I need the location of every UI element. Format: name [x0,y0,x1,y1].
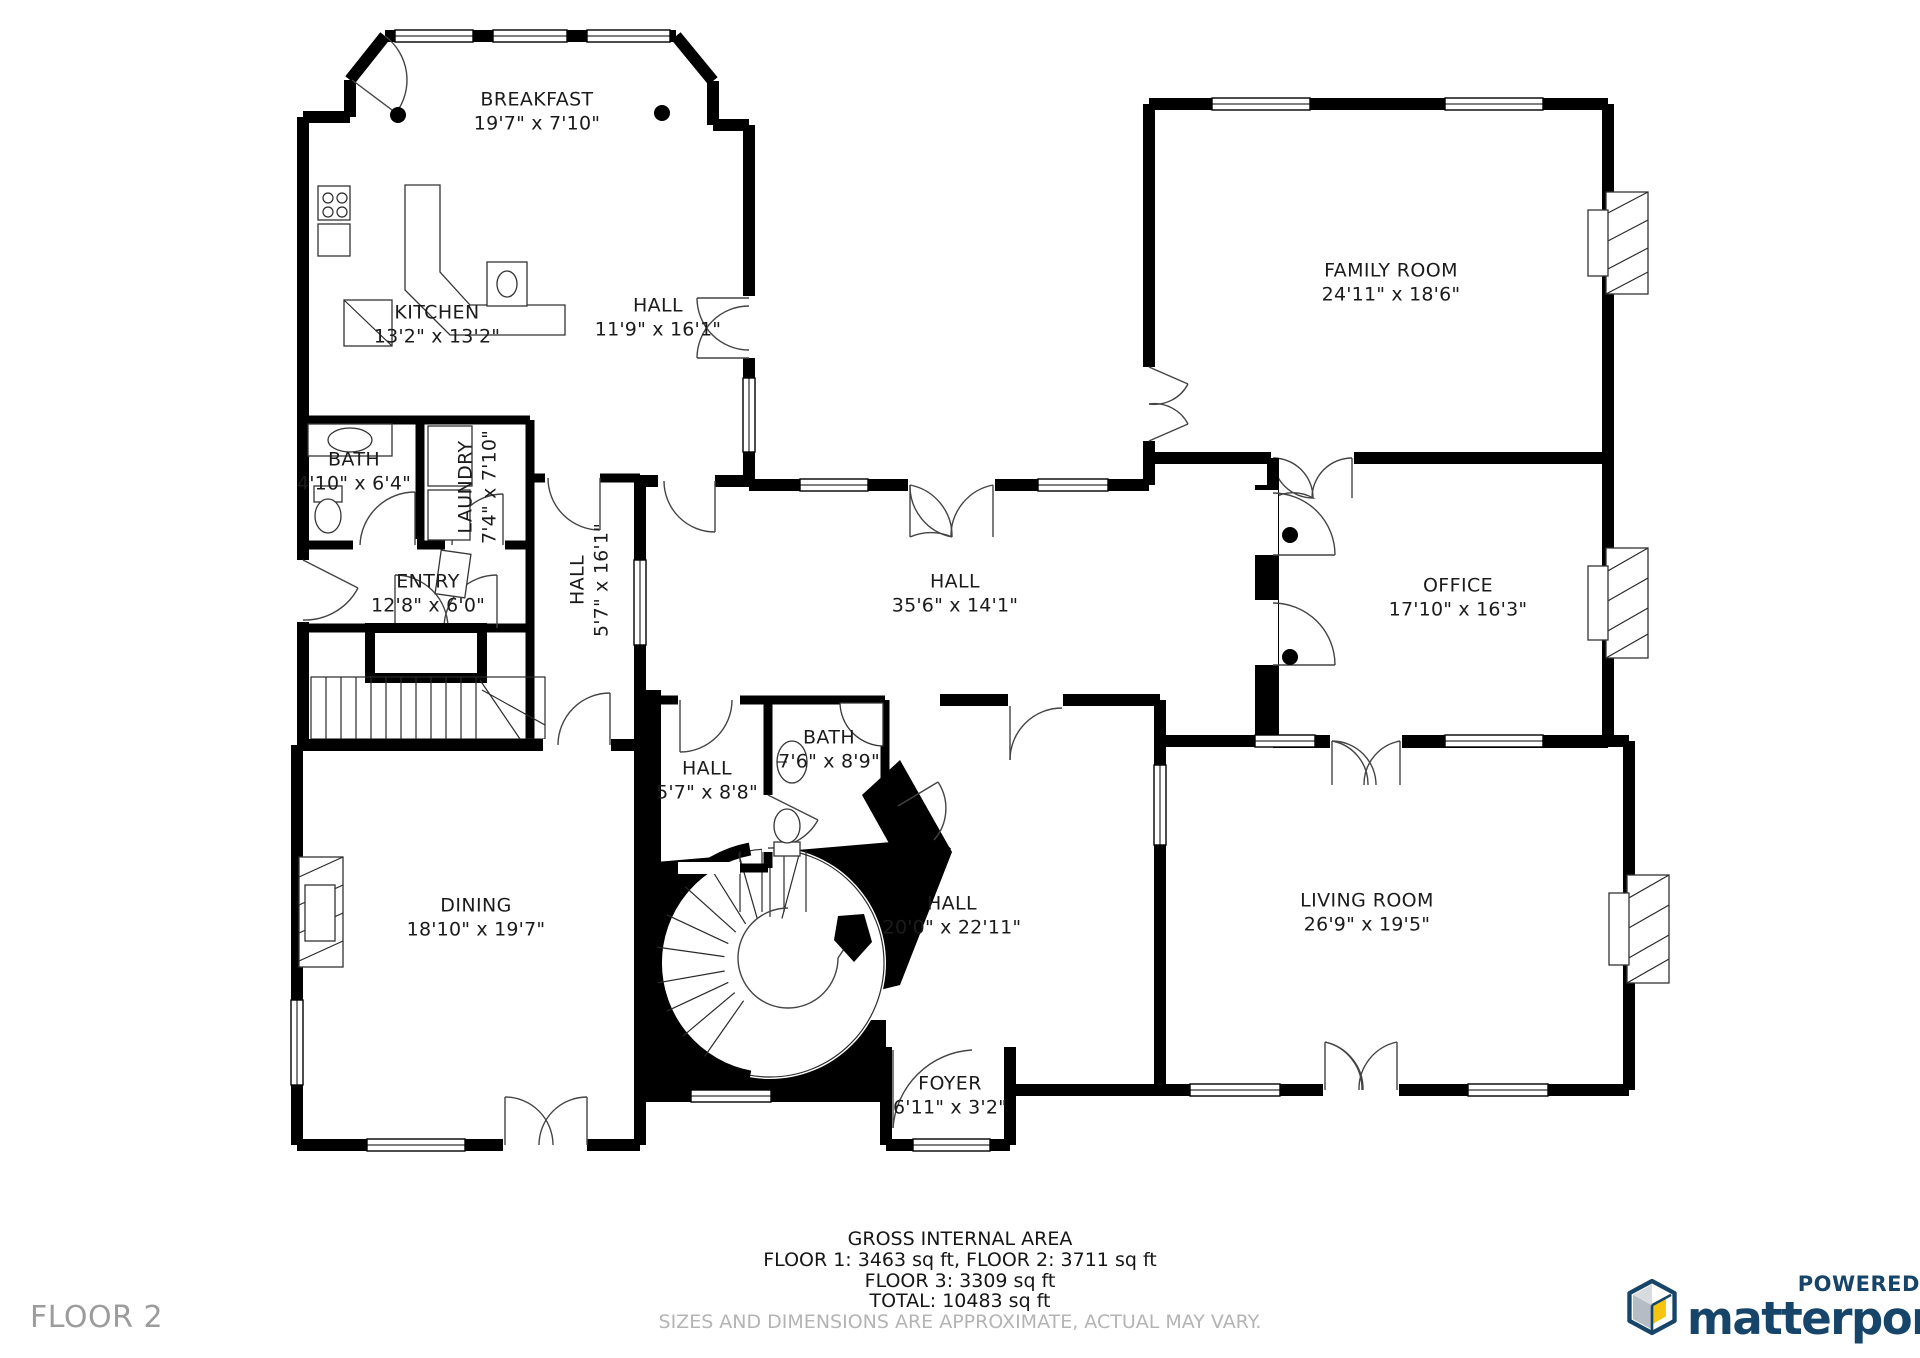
room-label-bath-center: BATH 7'6" x 8'9" [778,726,880,774]
matterport-cube-icon [1626,1278,1678,1336]
room-label-breakfast: BREAKFAST 19'7" x 7'10" [474,88,600,136]
room-label-kitchen: KITCHEN 13'2" x 13'2" [374,301,500,349]
spiral-staircase [654,847,886,1079]
room-label-hall-center: HALL 35'6" x 14'1" [892,570,1018,618]
floorplan-page: BREAKFAST 19'7" x 7'10" KITCHEN 13'2" x … [0,0,1920,1358]
room-label-hall-small: HALL 5'7" x 8'8" [656,757,758,805]
floor-areas-line1: FLOOR 1: 3463 sq ft, FLOOR 2: 3711 sq ft [0,1251,1920,1271]
room-label-entry: ENTRY 12'8" x 6'0" [371,570,485,618]
gross-area-title: GROSS INTERNAL AREA [0,1230,1920,1250]
room-label-living-room: LIVING ROOM 26'9" x 19'5" [1300,889,1434,937]
room-label-office: OFFICE 17'10" x 16'3" [1389,574,1528,622]
room-label-hall-vertical: HALL 5'7" x 16'1" [566,523,614,637]
room-label-family-room: FAMILY ROOM 24'11" x 18'6" [1322,259,1461,307]
floor-number-label: FLOOR 2 [30,1300,163,1335]
room-label-foyer: FOYER 6'11" x 3'2" [893,1072,1007,1120]
floor-plan-drawing [0,0,1920,1358]
matterport-logo[interactable]: POWERED BY matterport® [1626,1272,1920,1341]
room-label-dining: DINING 18'10" x 19'7" [407,894,546,942]
room-label-bath-left: BATH 4'10" x 6'4" [297,448,411,496]
room-label-laundry: LAUNDRY 7'4" x 7'10" [454,430,502,544]
room-label-hall-upper: HALL 11'9" x 16'1" [595,294,721,342]
matterport-wordmark: matterport® [1687,1296,1920,1341]
room-label-hall-lower: HALL 20'0" x 22'11" [883,892,1022,940]
